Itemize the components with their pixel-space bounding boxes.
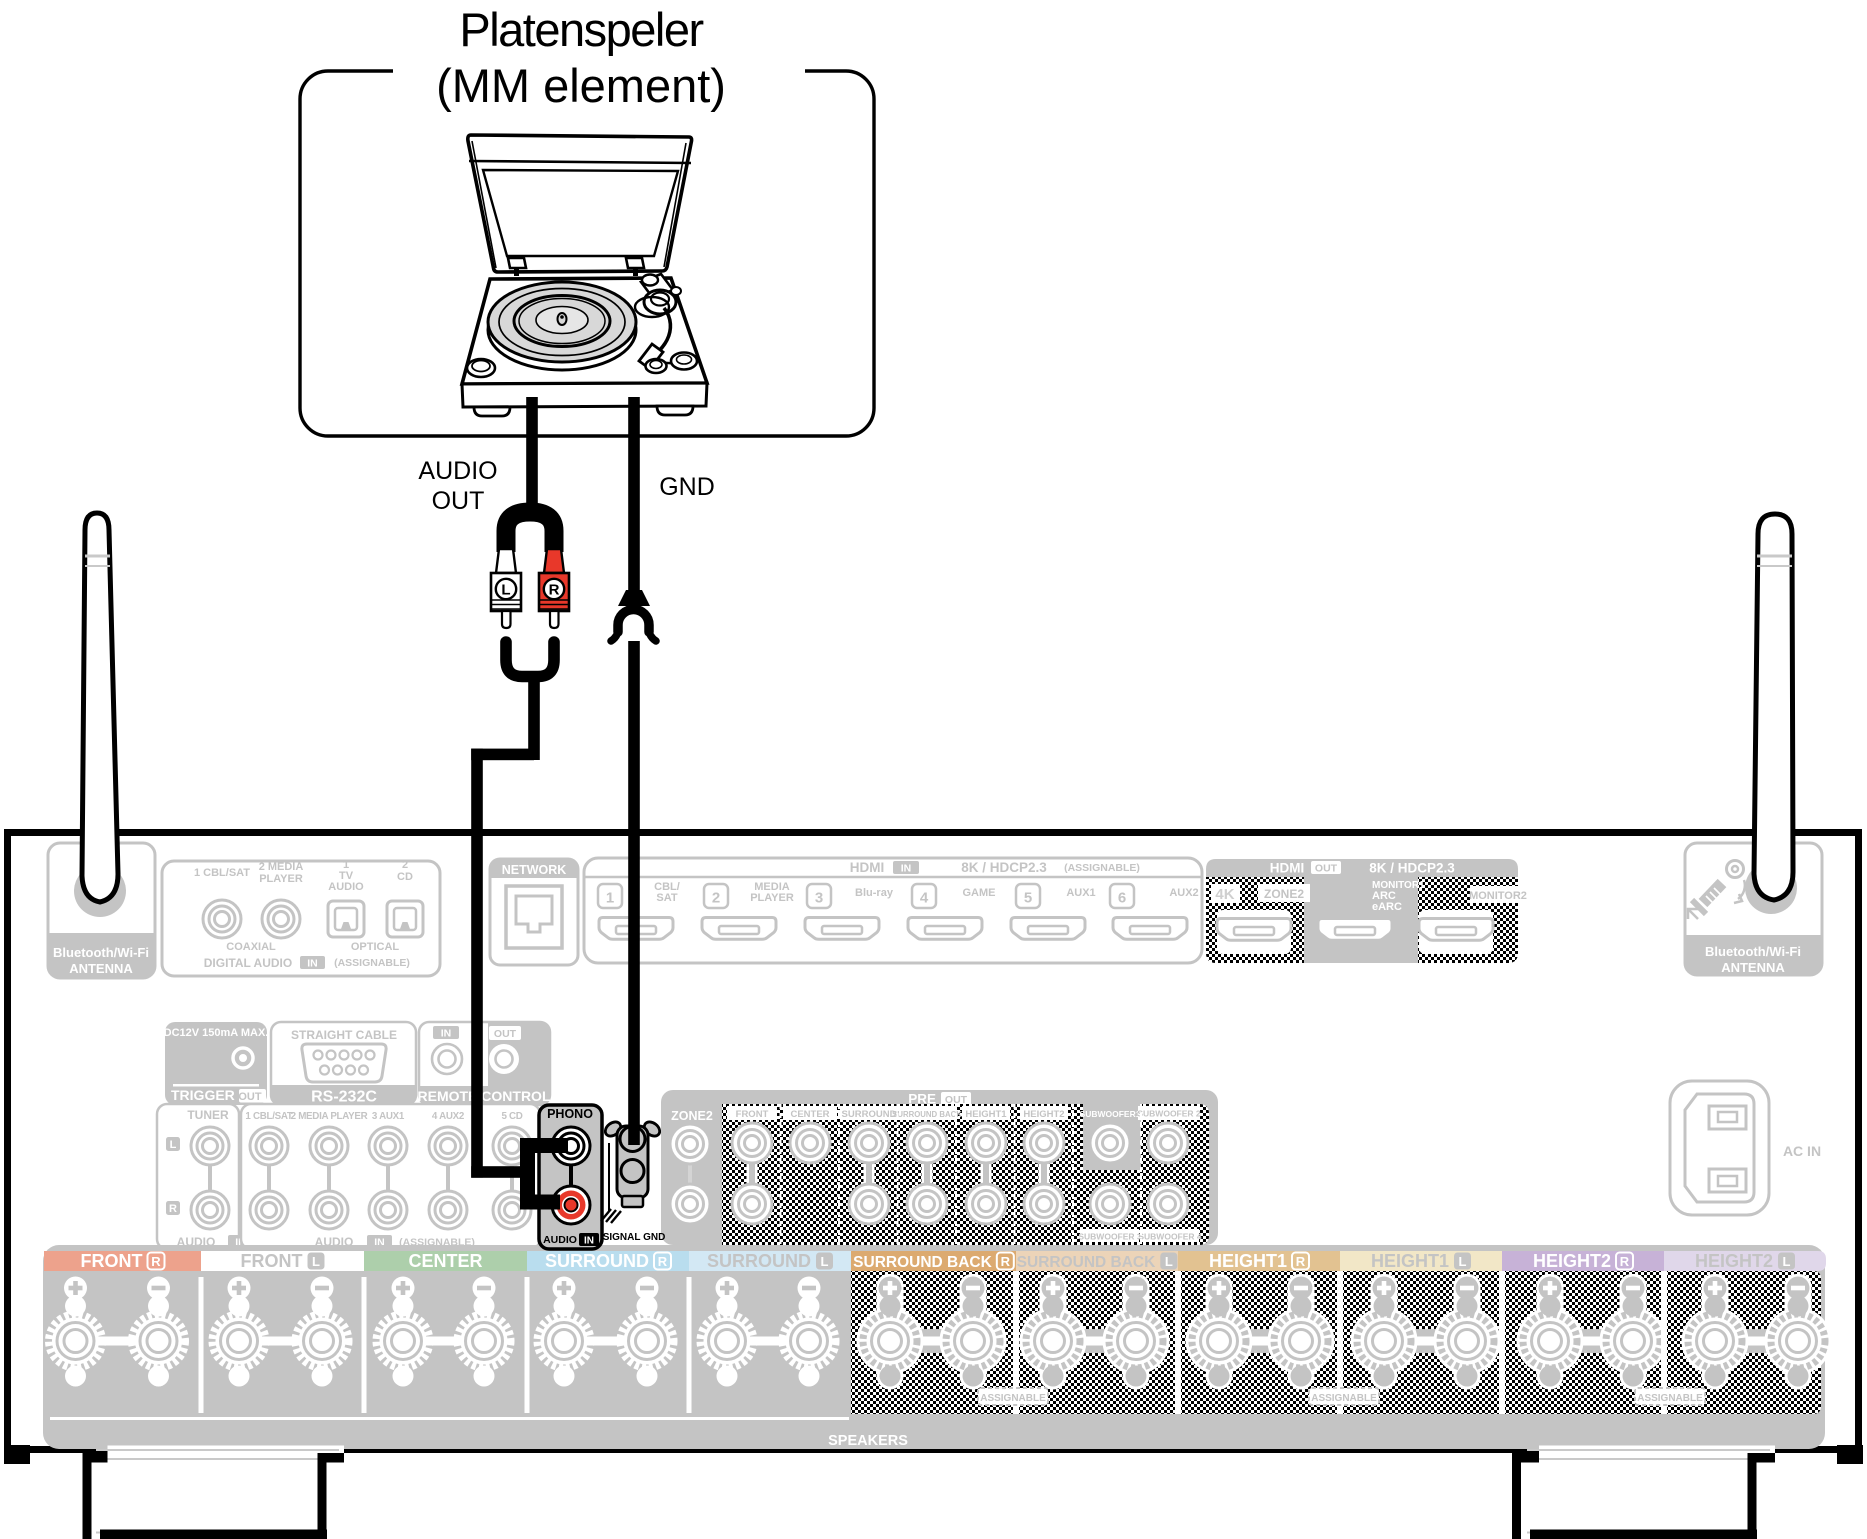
svg-text:PLAYER: PLAYER <box>750 892 794 904</box>
svg-text:CENTER: CENTER <box>790 1109 829 1120</box>
svg-text:SURROUND BACK: SURROUND BACK <box>892 1110 962 1119</box>
svg-text:2 MEDIA: 2 MEDIA <box>259 861 304 873</box>
svg-text:Bluetooth/Wi-Fi: Bluetooth/Wi-Fi <box>53 945 149 960</box>
svg-text:8K / HDCP2.3: 8K / HDCP2.3 <box>961 860 1047 875</box>
svg-text:6: 6 <box>1118 890 1126 907</box>
svg-text:IN: IN <box>901 863 912 875</box>
svg-text:SURROUND: SURROUND <box>545 1251 649 1271</box>
svg-text:HEIGHT1: HEIGHT1 <box>965 1109 1007 1120</box>
svg-text:(MM element): (MM element) <box>436 59 726 112</box>
svg-text:L: L <box>1165 1254 1173 1269</box>
svg-text:FRONT: FRONT <box>81 1251 143 1271</box>
svg-text:8K / HDCP2.3: 8K / HDCP2.3 <box>1369 861 1455 876</box>
svg-text:L: L <box>821 1254 829 1269</box>
svg-text:AUDIO: AUDIO <box>543 1234 577 1246</box>
svg-text:REMOTE CONTROL: REMOTE CONTROL <box>418 1088 551 1104</box>
svg-text:SUBWOOFER 3: SUBWOOFER 3 <box>1078 1232 1142 1242</box>
svg-text:OUT: OUT <box>432 487 485 515</box>
svg-text:NETWORK: NETWORK <box>502 863 567 877</box>
svg-text:R: R <box>549 582 560 599</box>
svg-text:ZONE2: ZONE2 <box>1264 887 1304 901</box>
svg-text:L: L <box>1459 1254 1467 1269</box>
svg-text:ASSIGNABLE: ASSIGNABLE <box>1311 1393 1377 1404</box>
svg-text:5 CD: 5 CD <box>501 1111 522 1122</box>
svg-text:Platenspeler: Platenspeler <box>459 3 703 56</box>
svg-text:L: L <box>501 582 510 599</box>
svg-text:HEIGHT2: HEIGHT2 <box>1023 1109 1064 1120</box>
svg-text:TUNER: TUNER <box>187 1108 229 1122</box>
svg-text:R: R <box>1620 1254 1630 1269</box>
svg-text:(ASSIGNABLE): (ASSIGNABLE) <box>1064 862 1140 874</box>
svg-text:SUBWOOFER1: SUBWOOFER1 <box>1080 1109 1141 1119</box>
svg-text:HDMI: HDMI <box>1270 861 1305 876</box>
svg-text:ANTENNA: ANTENNA <box>1721 960 1785 975</box>
svg-text:ASSIGNABLE: ASSIGNABLE <box>980 1393 1046 1404</box>
svg-text:eARC: eARC <box>1372 901 1402 913</box>
svg-text:AC IN: AC IN <box>1783 1143 1821 1159</box>
svg-text:4: 4 <box>920 890 929 907</box>
svg-text:COAXIAL: COAXIAL <box>226 941 276 953</box>
svg-text:DC12V 150mA MAX.: DC12V 150mA MAX. <box>164 1027 269 1039</box>
svg-text:5: 5 <box>1024 890 1032 907</box>
svg-text:3 AUX1: 3 AUX1 <box>372 1111 405 1122</box>
svg-text:HEIGHT1: HEIGHT1 <box>1371 1251 1449 1271</box>
svg-text:HEIGHT1: HEIGHT1 <box>1209 1251 1287 1271</box>
svg-text:OPTICAL: OPTICAL <box>351 941 400 953</box>
svg-text:ANTENNA: ANTENNA <box>69 961 133 976</box>
svg-text:1 CBL/SAT: 1 CBL/SAT <box>245 1111 293 1122</box>
svg-text:1 CBL/SAT: 1 CBL/SAT <box>194 867 250 879</box>
svg-text:FRONT: FRONT <box>241 1251 303 1271</box>
svg-text:AUDIO: AUDIO <box>328 881 364 893</box>
svg-text:R: R <box>1296 1254 1306 1269</box>
svg-text:AUDIO: AUDIO <box>418 457 497 485</box>
svg-text:PLAYER: PLAYER <box>259 873 303 885</box>
svg-text:4K: 4K <box>1215 886 1234 903</box>
svg-text:2: 2 <box>712 890 720 907</box>
svg-text:AUX2: AUX2 <box>1169 887 1198 899</box>
svg-text:SIGNAL GND: SIGNAL GND <box>603 1232 666 1243</box>
svg-text:MONITOR2: MONITOR2 <box>1469 890 1527 902</box>
svg-text:4 AUX2: 4 AUX2 <box>432 1111 465 1122</box>
svg-text:CENTER: CENTER <box>408 1251 482 1271</box>
svg-text:SAT: SAT <box>656 892 677 904</box>
svg-text:R: R <box>1001 1254 1011 1269</box>
svg-text:HEIGHT2: HEIGHT2 <box>1695 1251 1773 1271</box>
svg-text:IN: IN <box>441 1028 452 1040</box>
svg-text:SUBWOOFER 4: SUBWOOFER 4 <box>1138 1232 1202 1242</box>
svg-text:STRAIGHT CABLE: STRAIGHT CABLE <box>291 1028 397 1042</box>
svg-text:IN: IN <box>584 1236 594 1247</box>
svg-text:FRONT: FRONT <box>736 1109 769 1120</box>
svg-text:ZONE2: ZONE2 <box>671 1109 713 1123</box>
svg-text:(ASSIGNABLE): (ASSIGNABLE) <box>334 957 410 969</box>
svg-text:L: L <box>312 1254 320 1269</box>
svg-text:SURROUND: SURROUND <box>707 1251 811 1271</box>
svg-text:3: 3 <box>815 890 823 907</box>
svg-text:OUT: OUT <box>238 1091 262 1103</box>
svg-text:HEIGHT2: HEIGHT2 <box>1533 1251 1611 1271</box>
svg-text:OUT: OUT <box>494 1028 517 1040</box>
svg-text:Blu-ray: Blu-ray <box>855 887 894 899</box>
svg-text:L: L <box>1783 1254 1791 1269</box>
svg-text:L: L <box>170 1139 177 1151</box>
svg-text:R: R <box>151 1254 161 1269</box>
svg-text:AUX1: AUX1 <box>1066 887 1095 899</box>
svg-text:2: 2 <box>402 859 408 871</box>
svg-text:ASSIGNABLE: ASSIGNABLE <box>1637 1393 1703 1404</box>
svg-text:2 MEDIA PLAYER: 2 MEDIA PLAYER <box>291 1111 368 1122</box>
svg-text:SPEAKERS: SPEAKERS <box>828 1433 908 1449</box>
svg-text:OUT: OUT <box>1315 863 1338 875</box>
svg-text:GND: GND <box>659 473 715 501</box>
svg-text:GAME: GAME <box>963 887 996 899</box>
svg-text:Bluetooth/Wi-Fi: Bluetooth/Wi-Fi <box>1705 944 1801 959</box>
svg-text:SUBWOOFER 2: SUBWOOFER 2 <box>1137 1109 1201 1119</box>
svg-text:SURROUND BACK: SURROUND BACK <box>1017 1254 1156 1271</box>
svg-text:IN: IN <box>307 958 318 970</box>
svg-text:TRIGGER: TRIGGER <box>171 1087 235 1103</box>
svg-text:DIGITAL AUDIO: DIGITAL AUDIO <box>204 956 292 970</box>
svg-text:R: R <box>658 1254 668 1269</box>
svg-text:CD: CD <box>397 871 413 883</box>
svg-text:PHONO: PHONO <box>547 1107 593 1121</box>
svg-text:1: 1 <box>606 890 614 907</box>
svg-text:SURROUND BACK: SURROUND BACK <box>853 1254 992 1271</box>
svg-text:HDMI: HDMI <box>850 860 885 875</box>
svg-text:R: R <box>169 1203 177 1215</box>
svg-text:SURROUND: SURROUND <box>842 1109 897 1120</box>
